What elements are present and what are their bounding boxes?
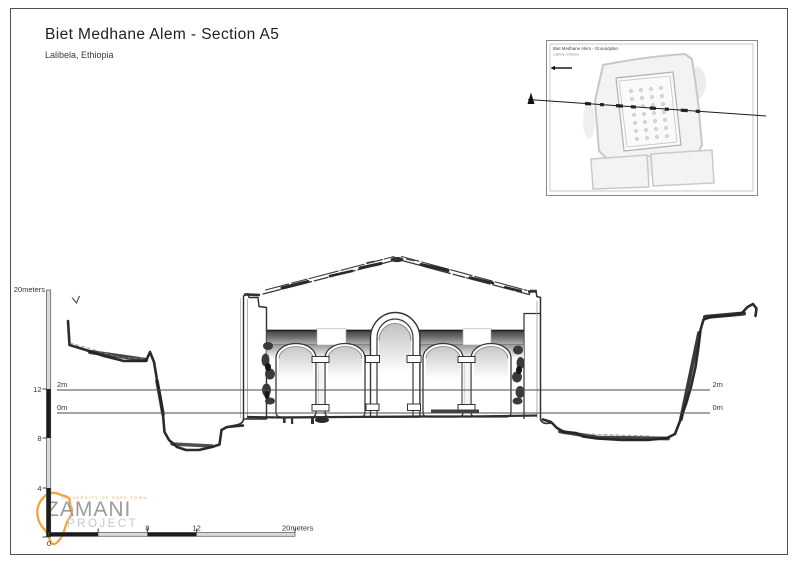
inset-subtitle: Lalibela, Ethiopia xyxy=(553,53,579,57)
column-base xyxy=(408,404,421,411)
vscale-tick-8: 8 xyxy=(37,434,41,443)
capital xyxy=(407,356,421,363)
columns xyxy=(312,357,475,412)
arcade-band xyxy=(267,329,525,359)
column xyxy=(458,357,475,412)
label-0m-left: 0m xyxy=(57,403,67,412)
page-subtitle: Lalibela, Ethiopia xyxy=(45,50,279,60)
section-marker-arrow xyxy=(528,93,535,105)
arch-opening xyxy=(325,344,365,418)
logo-project-text: PROJECT xyxy=(67,518,138,530)
drawing-sheet: Biet Medhane Alem - Section A5 Lalibela,… xyxy=(0,0,800,566)
label-0m-right: 0m xyxy=(713,403,723,412)
label-2m-left: 2m xyxy=(57,380,67,389)
benchmark-mark xyxy=(72,296,80,303)
column-base xyxy=(366,404,379,411)
floor-threshold xyxy=(431,410,479,414)
arch-opening xyxy=(276,344,316,418)
column-base xyxy=(458,405,475,412)
capital xyxy=(366,356,380,363)
central-arch xyxy=(366,313,422,417)
roof xyxy=(263,257,529,295)
title-block: Biet Medhane Alem - Section A5 Lalibela,… xyxy=(45,26,279,60)
church-section xyxy=(228,257,551,427)
column-base xyxy=(312,405,329,412)
left-wall xyxy=(228,294,267,427)
terrain-right xyxy=(543,304,757,440)
label-2m-right: 2m xyxy=(713,380,723,389)
clerestory-notch xyxy=(463,329,491,345)
pier-texture xyxy=(262,342,525,405)
right-wall xyxy=(524,291,551,424)
hscale-tick-12: 12 xyxy=(192,524,200,533)
inset-title: Biet Medhane Alem - Groundplan xyxy=(553,46,618,51)
inset-map: Biet Medhane Alem - Groundplan Lalibela,… xyxy=(546,40,758,196)
terrain-left xyxy=(68,321,243,450)
capital xyxy=(312,357,329,363)
arch-opening xyxy=(423,344,463,418)
clerestory-notch xyxy=(317,329,346,345)
floor xyxy=(247,410,537,425)
inset-scale-mark xyxy=(551,66,573,70)
arcade-arches xyxy=(276,344,511,418)
hscale-unit-label: 20meters xyxy=(282,524,314,533)
arch-opening xyxy=(471,344,511,418)
vscale-tick-12: 12 xyxy=(33,385,41,394)
page-title: Biet Medhane Alem - Section A5 xyxy=(45,26,279,44)
zamani-logo: UNIVERSITY OF CAPE TOWN ZAMANI PROJECT xyxy=(31,489,171,551)
groundplan-drawing: Biet Medhane Alem - Groundplan Lalibela,… xyxy=(547,41,757,195)
vscale-unit-label: 20meters xyxy=(14,285,46,294)
capital xyxy=(458,357,475,363)
reference-lines: 2m 0m 2m 0m xyxy=(57,380,723,413)
column xyxy=(312,357,329,412)
